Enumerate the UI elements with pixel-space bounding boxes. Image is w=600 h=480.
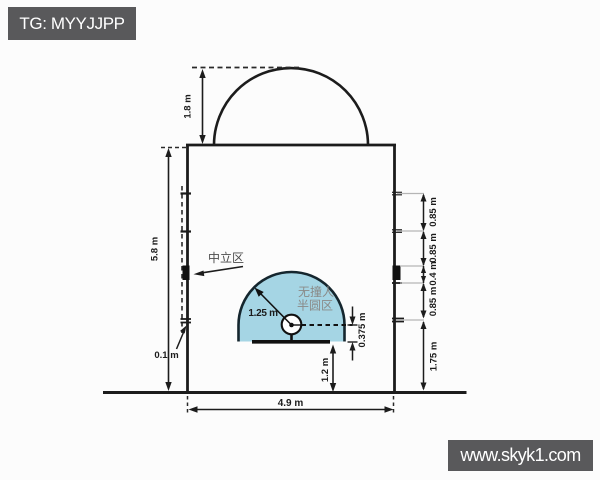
svg-text:5.8 m: 5.8 m [150, 237, 161, 261]
svg-text:半圆区: 半圆区 [297, 299, 333, 313]
svg-text:1.8 m: 1.8 m [183, 94, 194, 118]
svg-text:中立区: 中立区 [208, 250, 244, 265]
svg-text:0.85 m: 0.85 m [428, 197, 439, 227]
svg-text:0.1 m: 0.1 m [154, 350, 178, 361]
svg-text:0.85 m: 0.85 m [428, 287, 439, 317]
svg-text:0.4 m: 0.4 m [428, 261, 439, 285]
svg-text:无撞人: 无撞人 [298, 284, 334, 299]
svg-text:1.2 m: 1.2 m [320, 358, 331, 382]
svg-text:1.25 m: 1.25 m [248, 308, 278, 319]
svg-text:0.85 m: 0.85 m [428, 233, 439, 263]
svg-text:1.75 m: 1.75 m [429, 342, 440, 372]
svg-text:4.9 m: 4.9 m [278, 398, 304, 409]
svg-text:0.375 m: 0.375 m [357, 313, 368, 348]
